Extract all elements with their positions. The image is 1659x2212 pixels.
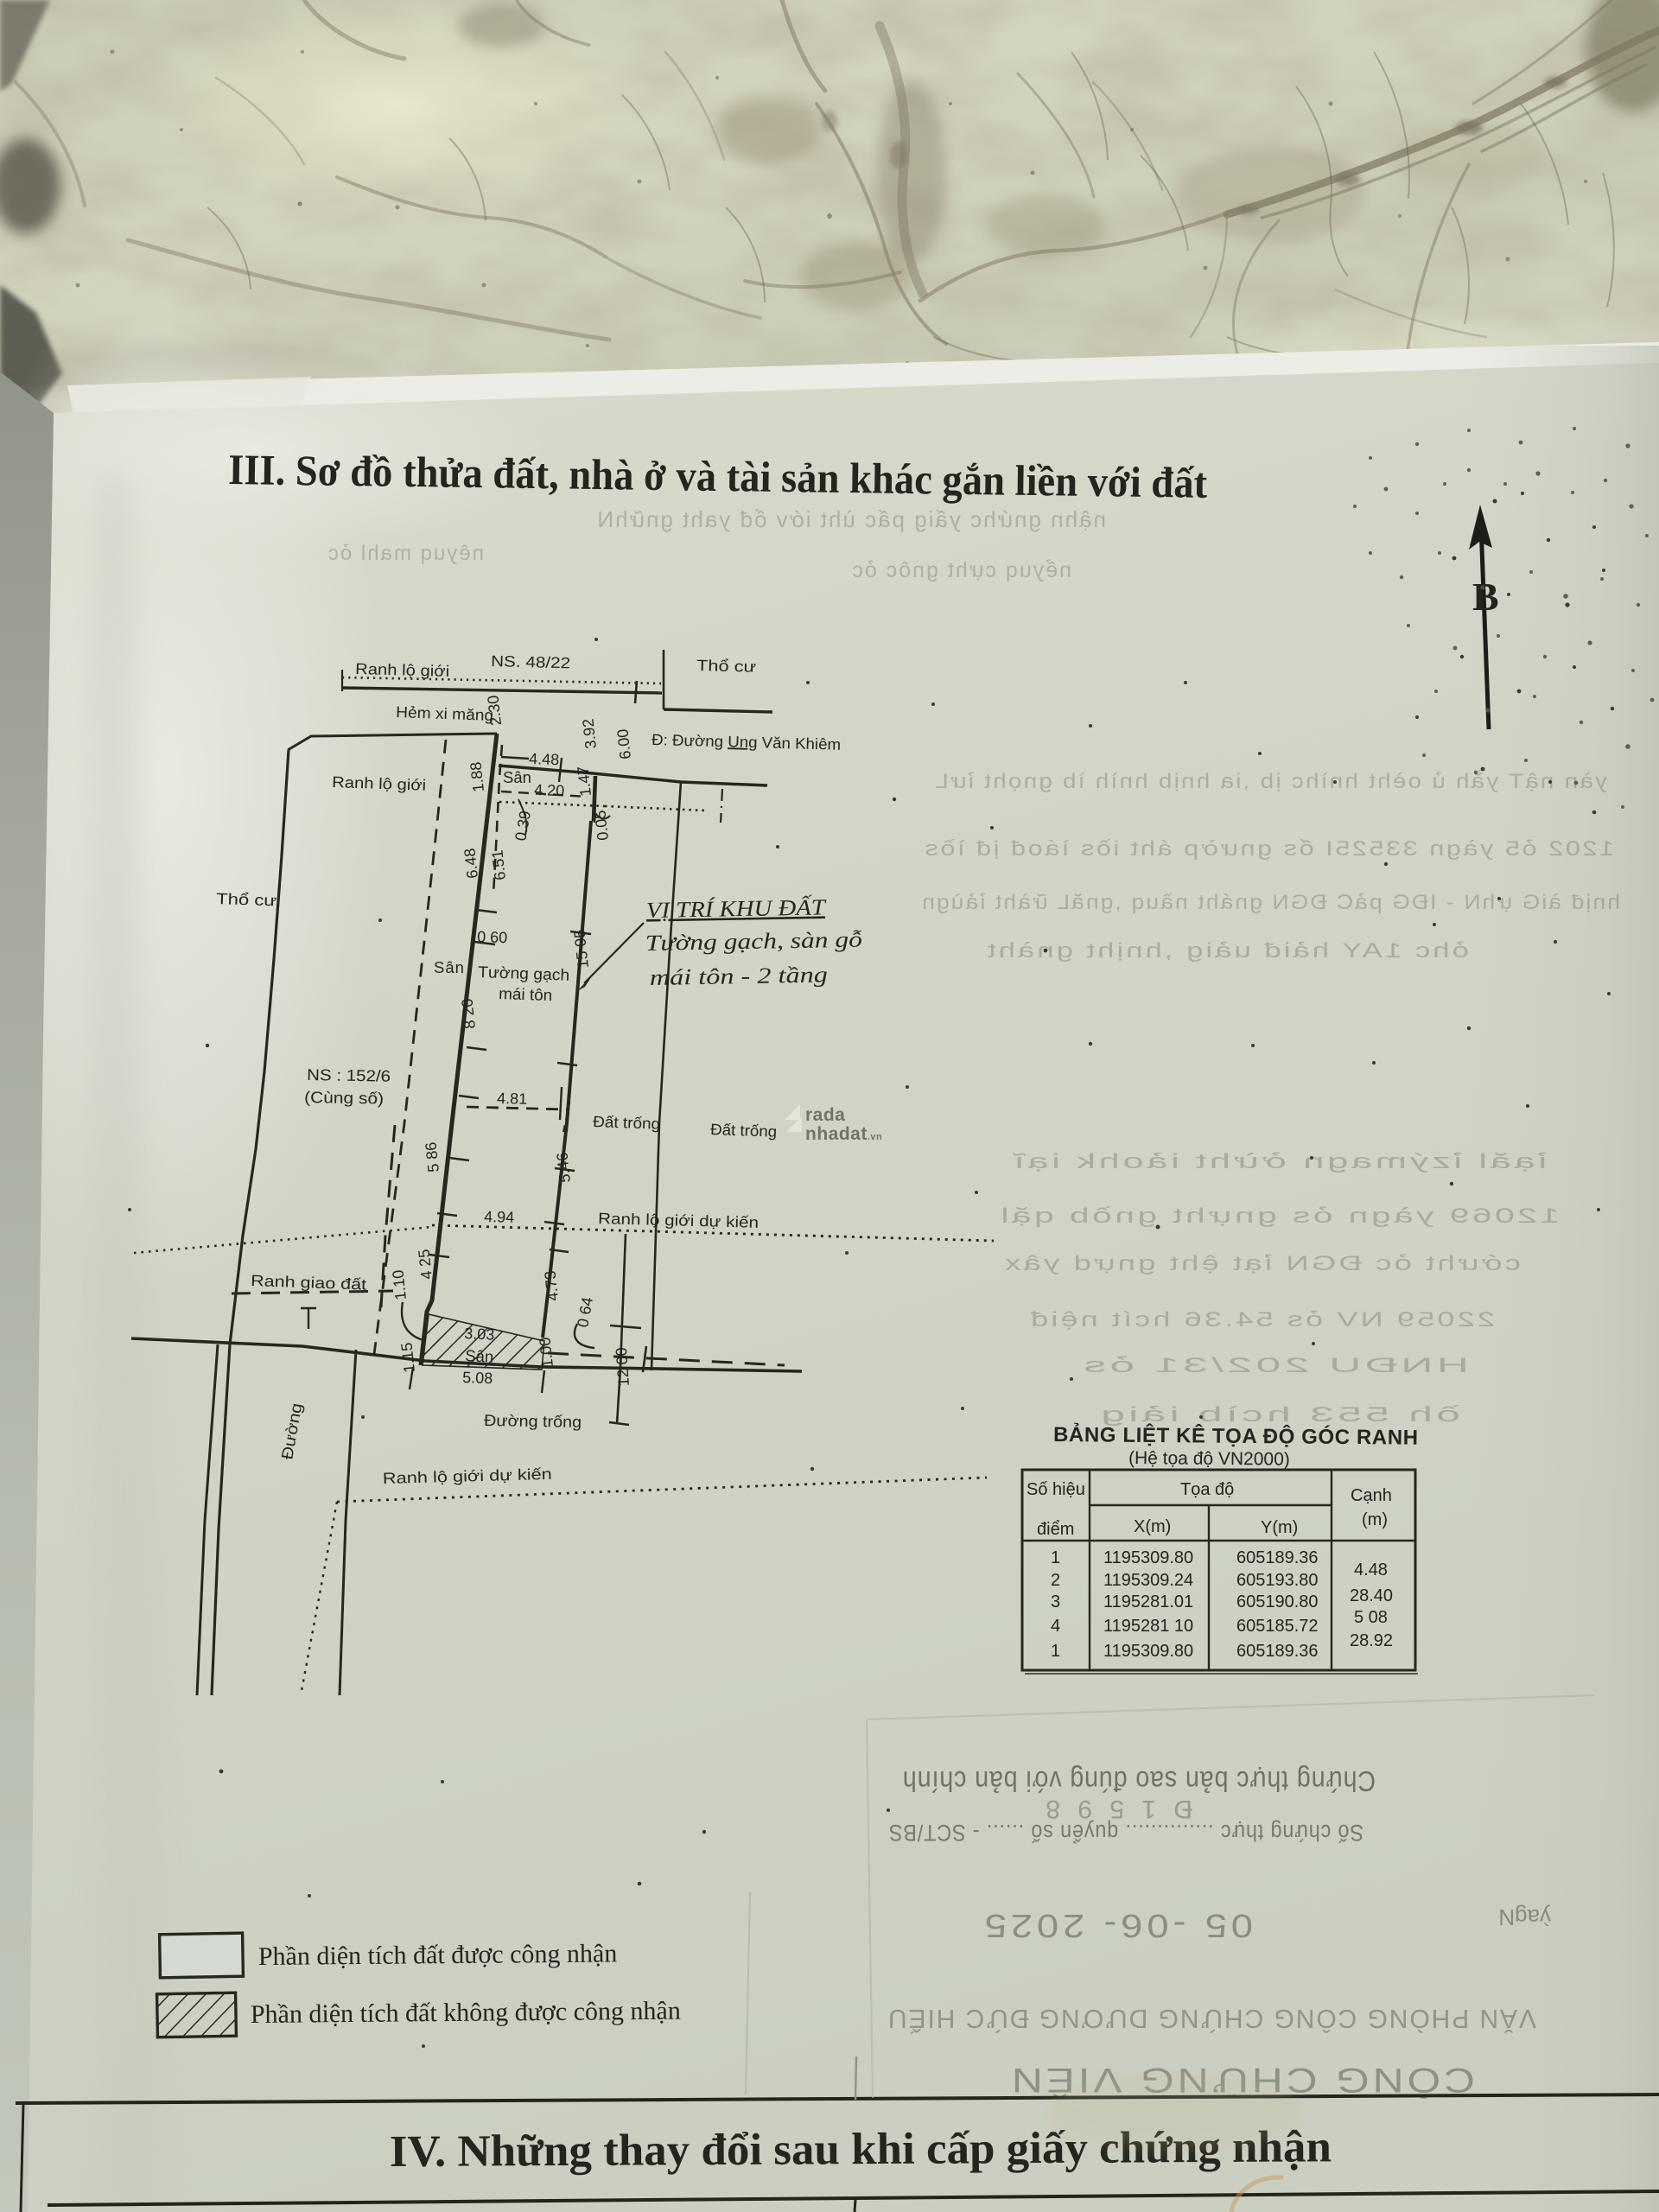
svg-text:1202 ỏ5 yàgn 33525I ốs gnườp á: 1202 ỏ5 yàgn 33525I ốs gnườp áht iồs ìáo…: [923, 837, 1614, 861]
svg-text:605190.80: 605190.80: [1236, 1592, 1319, 1611]
svg-text:5 08: 5 08: [1354, 1608, 1388, 1627]
svg-text:1195309.80: 1195309.80: [1103, 1548, 1193, 1567]
svg-text:4 25: 4 25: [415, 1249, 435, 1281]
svg-text:HNĐU 202/31 ỏs: HNĐU 202/31 ỏs: [1080, 1354, 1469, 1377]
svg-text:0.05: 0.05: [591, 810, 612, 842]
svg-text:4.73: 4.73: [541, 1270, 562, 1302]
svg-text:605193.80: 605193.80: [1236, 1571, 1319, 1590]
svg-text:Sân: Sân: [503, 768, 531, 786]
svg-text:8 20: 8 20: [458, 998, 479, 1030]
svg-text:1195281.01: 1195281.01: [1103, 1592, 1193, 1611]
svg-text:1: 1: [1051, 1548, 1060, 1567]
svg-text:05 -06- 2025: 05 -06- 2025: [981, 1907, 1253, 1943]
svg-text:nậhn gnứhc yấig pấc ùht iớv ổđ: nậhn gnứhc yấig pấc ùht iớv ổđ yaht gnữh…: [595, 506, 1106, 532]
svg-text:1.10: 1.10: [389, 1269, 410, 1301]
svg-text:yàn nậT yằh ủ oèht hnìhc ịb ,i: yàn nậT yằh ủ oèht hnìhc ịb ,ia hnịb hnì…: [933, 770, 1607, 793]
svg-text:Đường trống: Đường trống: [484, 1411, 582, 1431]
svg-text:605189.36: 605189.36: [1236, 1548, 1319, 1567]
svg-text:0 60: 0 60: [477, 928, 508, 946]
svg-text:605185.72: 605185.72: [1236, 1617, 1319, 1636]
svg-text:Hẻm xi măng: Hẻm xi măng: [396, 703, 494, 724]
svg-text:Phần diện tích đất được công n: Phần diện tích đất được công nhận: [258, 1939, 618, 1971]
svg-text:ỏhc 1AY hảiđ uảig ,hnịht gnàht: ỏhc 1AY hảiđ uảig ,hnịht gnàht: [985, 939, 1469, 963]
svg-text:6.51: 6.51: [488, 849, 509, 881]
svg-text:1.15: 1.15: [397, 1342, 418, 1374]
svg-text:điểm: điểm: [1037, 1520, 1074, 1539]
svg-text:Số hiệu: Số hiệu: [1027, 1480, 1085, 1499]
svg-text:X(m): X(m): [1134, 1517, 1171, 1536]
svg-text:Chứng thực bản sao đúng với bả: Chứng thực bản sao đúng với bản chính: [902, 1765, 1376, 1797]
svg-text:1.00: 1.00: [536, 1337, 556, 1369]
svg-text:NS : 152/6: NS : 152/6: [307, 1065, 391, 1085]
svg-text:Phần diện tích đất không được: Phần diện tích đất không được công nhận: [251, 1997, 681, 2029]
svg-text:5.08: 5.08: [462, 1369, 493, 1387]
svg-text:(Hệ tọa độ VN2000): (Hệ tọa độ VN2000): [1128, 1448, 1290, 1470]
svg-text:4.48: 4.48: [1354, 1560, 1388, 1580]
svg-text:4: 4: [1051, 1617, 1060, 1636]
svg-text:mái tôn: mái tôn: [499, 984, 553, 1004]
svg-text:Ranh lộ giới: Ranh lộ giới: [332, 773, 427, 794]
svg-text:4.94: 4.94: [484, 1208, 515, 1226]
svg-text:4.81: 4.81: [497, 1090, 528, 1108]
svg-text:Tọa độ: Tọa độ: [1180, 1480, 1234, 1499]
svg-text:1195309.80: 1195309.80: [1103, 1642, 1193, 1661]
svg-text:VỊ TRÍ KHU ĐẤT: VỊ TRÍ KHU ĐẤT: [646, 894, 827, 923]
svg-text:22059 NV ỏs 54.36 hcít nệiđ: 22059 NV ỏs 54.36 hcít nệiđ: [1028, 1308, 1495, 1332]
svg-text:4.20: 4.20: [534, 781, 565, 799]
svg-text:Cạnh: Cạnh: [1351, 1486, 1392, 1505]
svg-text:(Cùng số): (Cùng số): [304, 1088, 384, 1108]
svg-text:3.03: 3.03: [464, 1325, 495, 1344]
svg-text:5.46: 5.46: [553, 1152, 574, 1184]
svg-text:nểyuq cựht gnôc ỏc: nểyuq cựht gnôc ỏc: [850, 558, 1071, 582]
svg-text:2: 2: [1051, 1571, 1060, 1590]
svg-text:ồh 553 hcìb iảig: ồh 553 hcìb iảig: [1097, 1403, 1460, 1427]
svg-text:rada: rada: [805, 1105, 845, 1125]
svg-text:ỳagN: ỳagN: [1498, 1904, 1551, 1930]
svg-text:Thổ cư: Thổ cư: [216, 890, 277, 909]
svg-text:Đ 1 5 9 8: Đ 1 5 9 8: [1040, 1795, 1192, 1823]
svg-text:Ranh lộ giới: Ranh lộ giới: [355, 660, 449, 680]
svg-text:NS. 48/22: NS. 48/22: [491, 652, 570, 671]
svg-text:12 00: 12 00: [613, 1347, 632, 1387]
svg-text:ỉạăl ỉzýmagn ởừht iảohk iạĩ: ỉạăl ỉzýmagn ởừht iảohk iạĩ: [1011, 1150, 1547, 1173]
svg-text:12069 yàgn ỏs gnựht gnồb qặl: 12069 yàgn ỏs gnựht gnồb qặl: [998, 1205, 1560, 1228]
svg-text:6.48: 6.48: [461, 848, 481, 880]
svg-text:cớưht ỏc ĐGN ỉạt ệht gnựd yâx: cớưht ỏc ĐGN ỉạt ệht gnựd yâx: [1002, 1252, 1521, 1275]
svg-text:1: 1: [1051, 1642, 1060, 1661]
svg-text:Tường gạch, sàn gỗ: Tường gạch, sàn gỗ: [645, 927, 862, 956]
svg-text:1195281 10: 1195281 10: [1103, 1617, 1193, 1636]
svg-text:Sân: Sân: [465, 1346, 494, 1366]
svg-text:Y(m): Y(m): [1261, 1518, 1298, 1537]
svg-text:(m): (m): [1362, 1510, 1388, 1529]
svg-text:3.92: 3.92: [579, 718, 600, 750]
svg-text:4.48: 4.48: [529, 750, 560, 768]
svg-text:2.30: 2.30: [484, 695, 505, 727]
svg-text:Sân: Sân: [434, 958, 465, 976]
svg-text:Tường gạch: Tường gạch: [478, 963, 570, 984]
svg-text:1.47: 1.47: [574, 766, 594, 798]
svg-text:mái tôn - 2 tầng: mái tôn - 2 tầng: [650, 962, 828, 990]
svg-text:B: B: [1472, 575, 1499, 619]
svg-text:nêyuq mahl ỏc: nêyuq mahl ỏc: [327, 542, 484, 565]
svg-text:Thổ cư: Thổ cư: [696, 657, 756, 676]
svg-text:Đất trống: Đất trống: [710, 1121, 778, 1141]
svg-text:5 86: 5 86: [422, 1141, 442, 1173]
svg-text:605189.36: 605189.36: [1236, 1642, 1319, 1661]
svg-text:hnịđ àiG ựhN - IĐG pảC ĐGN gná: hnịđ àiG ựhN - IĐG pảC ĐGN gnáht nầuq ,g…: [920, 891, 1620, 914]
svg-text:1.88: 1.88: [467, 761, 487, 793]
svg-text:6.00: 6.00: [613, 728, 634, 760]
svg-text:VĂN PHÒNG CÔNG CHỨNG DƯƠNG ĐỨC: VĂN PHÒNG CÔNG CHỨNG DƯƠNG ĐỨC HIẾU: [887, 2004, 1536, 2034]
svg-text:28.92: 28.92: [1350, 1631, 1393, 1650]
svg-text:1195309.24: 1195309.24: [1103, 1571, 1193, 1590]
svg-text:Đất trống: Đất trống: [593, 1113, 661, 1133]
svg-text:28.40: 28.40: [1350, 1586, 1393, 1605]
svg-text:3: 3: [1051, 1592, 1060, 1611]
